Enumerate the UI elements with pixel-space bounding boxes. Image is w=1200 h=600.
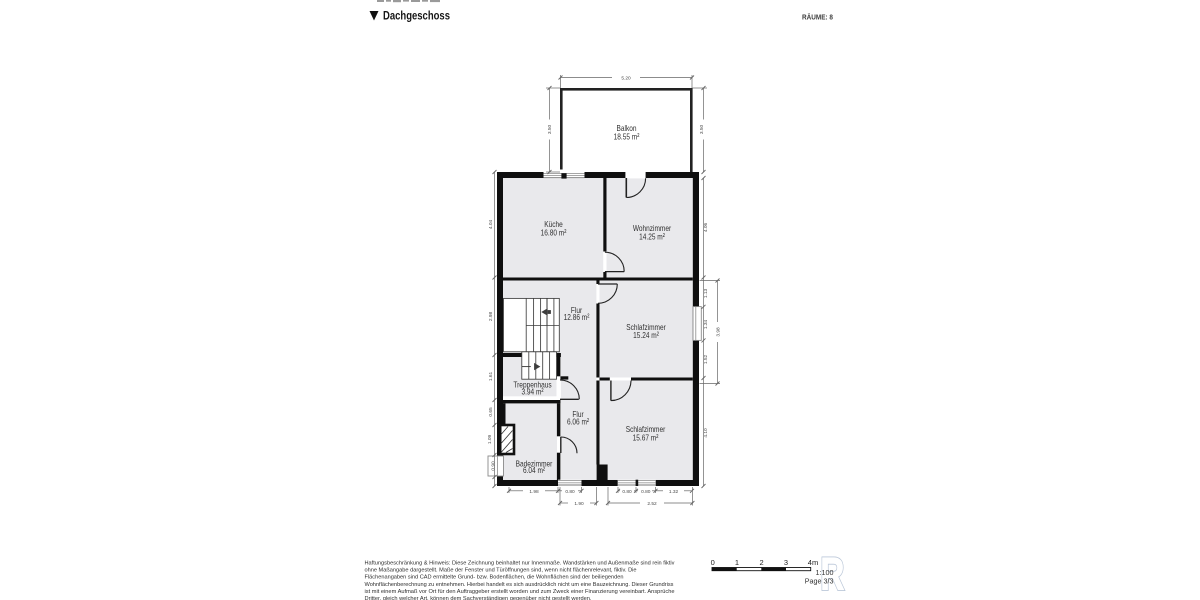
svg-text:Page 3/3: Page 3/3 bbox=[805, 577, 834, 586]
svg-text:4m: 4m bbox=[808, 558, 818, 567]
svg-text:18.55 m²: 18.55 m² bbox=[614, 131, 640, 141]
svg-text:6.04 m²: 6.04 m² bbox=[523, 465, 546, 475]
svg-text:1.98: 1.98 bbox=[529, 489, 539, 495]
svg-text:ist mit einem Aufmaß vor Ort f: ist mit einem Aufmaß vor Ort für den Auf… bbox=[365, 589, 675, 595]
svg-text:2.52: 2.52 bbox=[647, 501, 657, 507]
svg-text:0: 0 bbox=[711, 558, 715, 567]
svg-text:4.10: 4.10 bbox=[703, 428, 709, 438]
svg-text:1.52: 1.52 bbox=[703, 355, 709, 365]
svg-text:3.50: 3.50 bbox=[699, 125, 705, 135]
svg-text:4.06: 4.06 bbox=[703, 223, 709, 233]
svg-text:2.98: 2.98 bbox=[488, 312, 494, 322]
svg-text:0.80: 0.80 bbox=[565, 489, 575, 495]
svg-text:0.90: 0.90 bbox=[491, 461, 497, 471]
svg-text:0.80: 0.80 bbox=[641, 489, 651, 495]
svg-text:Flächenangaben sind CAD ermitt: Flächenangaben sind CAD ermittelte Grund… bbox=[365, 575, 624, 581]
svg-text:15.24 m²: 15.24 m² bbox=[633, 330, 659, 340]
svg-text:0.65: 0.65 bbox=[488, 407, 494, 417]
svg-text:12.86 m²: 12.86 m² bbox=[564, 312, 590, 322]
svg-text:6.06 m²: 6.06 m² bbox=[567, 417, 590, 427]
svg-text:RÄUME: 8: RÄUME: 8 bbox=[802, 13, 833, 21]
svg-text:1.34: 1.34 bbox=[703, 320, 709, 330]
svg-text:4.04: 4.04 bbox=[488, 220, 494, 230]
svg-text:15.67 m²: 15.67 m² bbox=[633, 433, 659, 443]
svg-text:3.98: 3.98 bbox=[715, 327, 721, 337]
svg-text:1: 1 bbox=[735, 558, 739, 567]
svg-text:3.50: 3.50 bbox=[547, 125, 553, 135]
svg-text:1.61: 1.61 bbox=[488, 372, 494, 382]
svg-text:Dachgeschoss: Dachgeschoss bbox=[383, 8, 450, 22]
svg-text:5.20: 5.20 bbox=[621, 76, 631, 82]
svg-text:2: 2 bbox=[760, 558, 764, 567]
svg-text:1.09: 1.09 bbox=[487, 435, 493, 445]
svg-text:1.90: 1.90 bbox=[574, 501, 584, 507]
svg-text:16.80 m²: 16.80 m² bbox=[541, 228, 567, 238]
svg-text:14.25 m²: 14.25 m² bbox=[639, 232, 665, 242]
svg-text:Wohnflächenberechnung zu entne: Wohnflächenberechnung zu entnehmen. Hier… bbox=[365, 582, 674, 588]
svg-text:1.32: 1.32 bbox=[669, 489, 679, 495]
svg-text:Dritter, gleich welcher Art, k: Dritter, gleich welcher Art, können dem … bbox=[365, 596, 592, 600]
svg-text:3.94 m²: 3.94 m² bbox=[521, 387, 544, 397]
svg-text:Haftungsbeschränkung & Hinweis: Haftungsbeschränkung & Hinweis: Diese Ze… bbox=[365, 561, 675, 567]
svg-text:3: 3 bbox=[784, 558, 788, 567]
svg-text:1.13: 1.13 bbox=[703, 289, 709, 299]
svg-text:ohne Maßangabe dargestellt. Ma: ohne Maßangabe dargestellt. Maße der Fen… bbox=[365, 568, 637, 574]
svg-text:0.80: 0.80 bbox=[622, 489, 632, 495]
